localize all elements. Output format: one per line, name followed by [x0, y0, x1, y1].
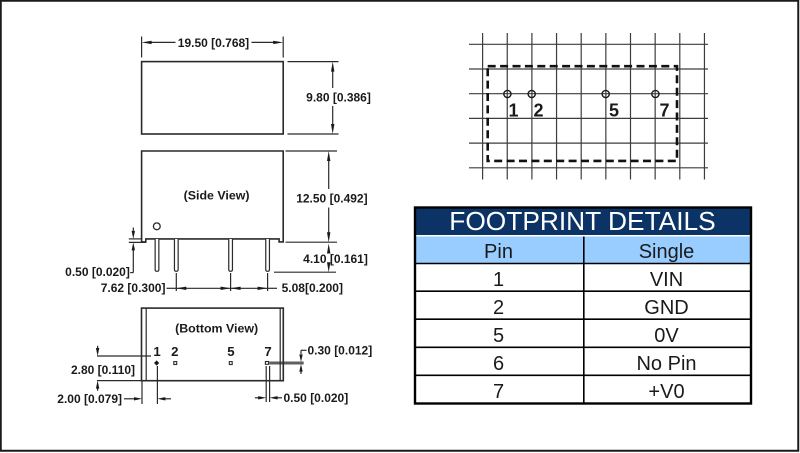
- svg-text:1: 1: [153, 344, 160, 359]
- svg-text:Pin: Pin: [484, 241, 513, 263]
- svg-text:2: 2: [171, 344, 178, 359]
- svg-text:7: 7: [659, 101, 669, 121]
- svg-text:1: 1: [508, 101, 518, 121]
- svg-text:5: 5: [609, 101, 619, 121]
- svg-text:9.80 [0.386]: 9.80 [0.386]: [306, 90, 371, 104]
- svg-text:VIN: VIN: [650, 269, 683, 291]
- svg-text:GND: GND: [644, 297, 688, 319]
- svg-text:+V0: +V0: [648, 381, 684, 403]
- svg-text:No Pin: No Pin: [636, 353, 696, 375]
- svg-text:2: 2: [533, 101, 543, 121]
- svg-text:19.50 [0.768]: 19.50 [0.768]: [178, 36, 249, 50]
- svg-text:1: 1: [493, 269, 504, 291]
- svg-text:(Bottom View): (Bottom View): [175, 321, 258, 335]
- svg-text:2: 2: [493, 297, 504, 319]
- svg-text:2.00 [0.079]: 2.00 [0.079]: [57, 392, 122, 406]
- svg-text:7: 7: [493, 381, 504, 403]
- svg-text:2.80 [0.110]: 2.80 [0.110]: [71, 363, 135, 377]
- svg-text:Single: Single: [639, 241, 695, 263]
- svg-text:6: 6: [493, 353, 504, 375]
- svg-text:5.08[0.200]: 5.08[0.200]: [282, 281, 343, 295]
- svg-text:0.50 [0.020]: 0.50 [0.020]: [284, 391, 349, 405]
- svg-text:0V: 0V: [654, 325, 679, 347]
- svg-text:0.30 [0.012]: 0.30 [0.012]: [308, 344, 373, 358]
- svg-text:4.10 [0.161]: 4.10 [0.161]: [303, 252, 368, 266]
- svg-text:(Side View): (Side View): [184, 189, 250, 203]
- svg-text:12.50 [0.492]: 12.50 [0.492]: [296, 192, 367, 206]
- svg-text:7.62 [0.300]: 7.62 [0.300]: [101, 281, 166, 295]
- svg-text:5: 5: [227, 344, 234, 359]
- svg-text:0.50 [0.020]: 0.50 [0.020]: [65, 265, 130, 279]
- svg-text:FOOTPRINT DETAILS: FOOTPRINT DETAILS: [449, 206, 715, 236]
- svg-text:5: 5: [493, 325, 504, 347]
- svg-text:7: 7: [264, 344, 271, 359]
